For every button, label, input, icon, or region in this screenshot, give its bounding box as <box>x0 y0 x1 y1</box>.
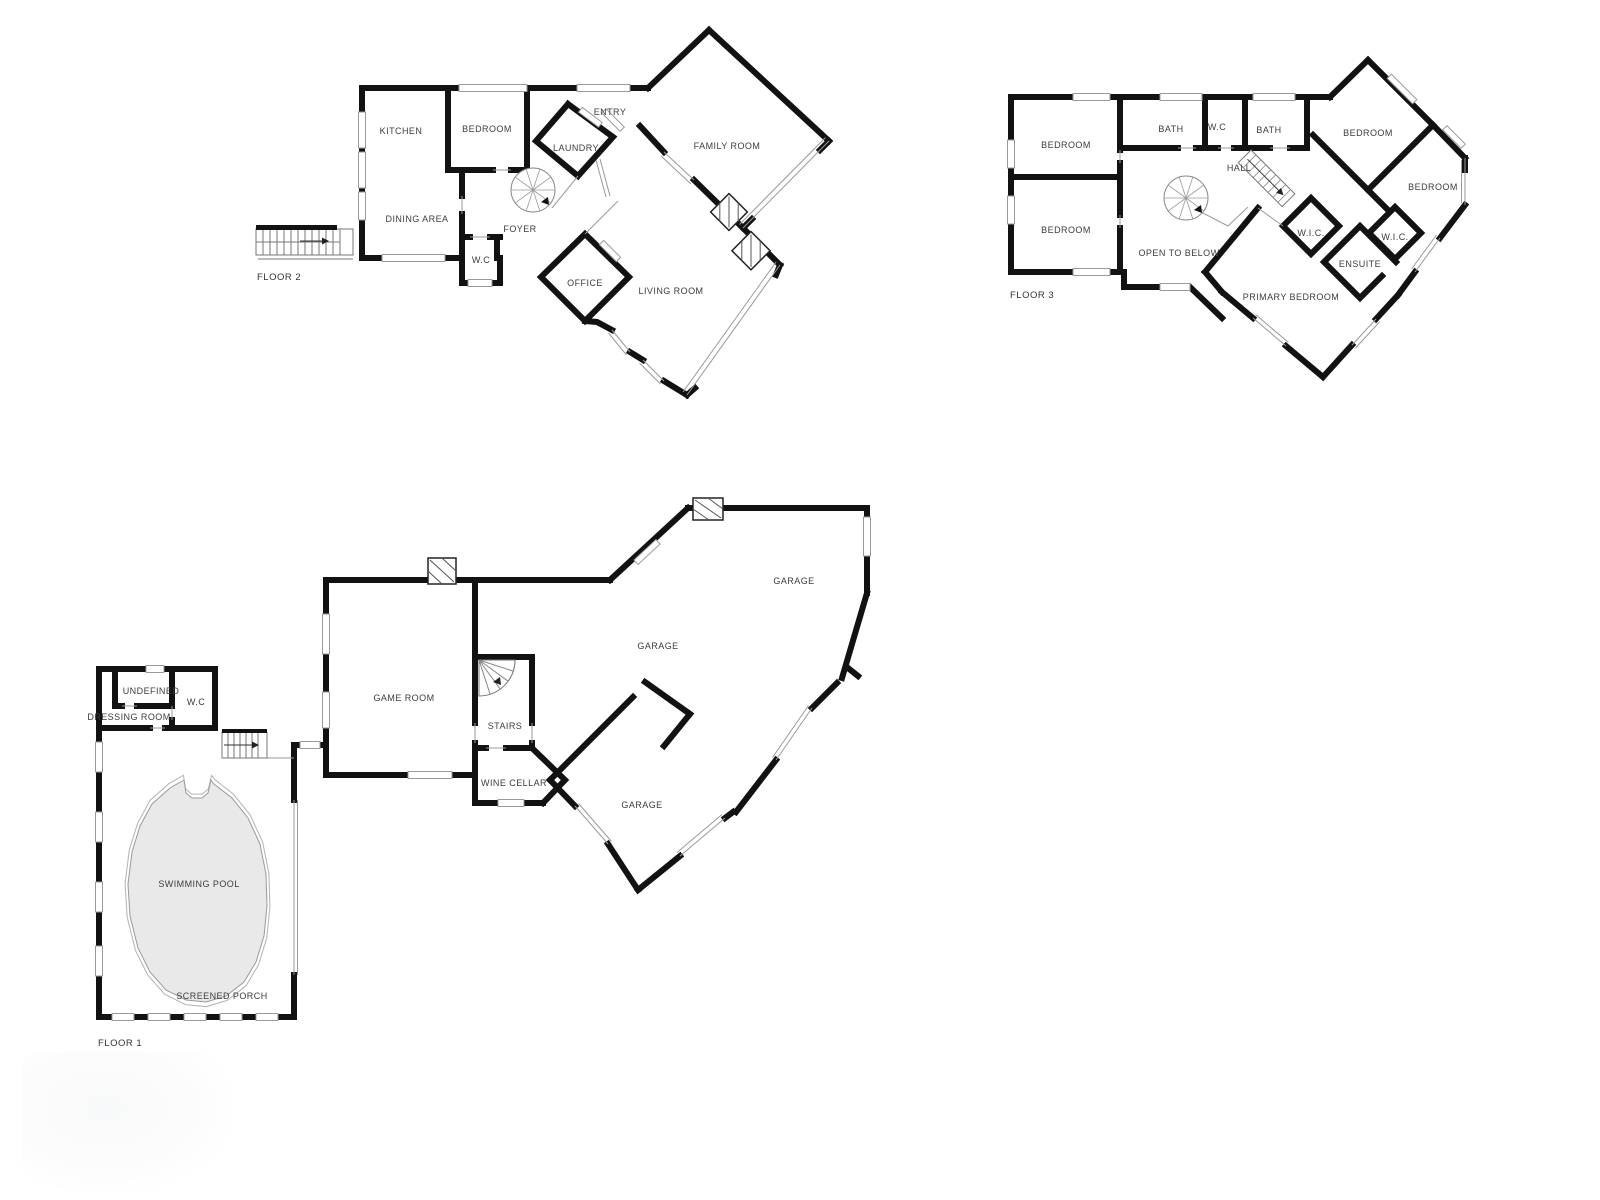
room-label-wic-right: W.I.C. <box>1381 232 1408 242</box>
room-label-open-to-below: OPEN TO BELOW <box>1138 248 1219 258</box>
room-label-bath-1: BATH <box>1158 124 1183 134</box>
room-label-kitchen: KITCHEN <box>380 126 423 136</box>
room-label-screened-porch: SCREENED PORCH <box>176 991 267 1001</box>
room-label-bath-2: BATH <box>1256 125 1281 135</box>
floor-1-caption: FLOOR 1 <box>98 1038 142 1049</box>
floor-3-caption: FLOOR 3 <box>1010 290 1054 301</box>
room-label-wic-left: W.I.C. <box>1297 228 1324 238</box>
room-label-bedroom-f3-bl: BEDROOM <box>1041 225 1091 235</box>
room-label-laundry: LAUNDRY <box>553 143 599 153</box>
room-label-bedroom-f3-tl: BEDROOM <box>1041 140 1091 150</box>
faint-watermark <box>22 1052 232 1192</box>
room-label-ensuite: ENSUITE <box>1339 259 1381 269</box>
floor-2-caption: FLOOR 2 <box>257 272 301 283</box>
room-label-game-room: GAME ROOM <box>373 693 434 703</box>
room-label-family-room: FAMILY ROOM <box>694 141 761 151</box>
room-label-wine-cellar: WINE CELLAR <box>481 778 547 788</box>
pool-shape <box>128 780 267 1002</box>
room-label-bedroom-f3-r: BEDROOM <box>1408 182 1458 192</box>
room-label-living-room: LIVING ROOM <box>639 286 704 296</box>
room-label-entry: ENTRY <box>594 107 627 117</box>
room-label-garage-bottom: GARAGE <box>621 800 662 810</box>
room-label-bedroom-f3-tr: BEDROOM <box>1343 128 1393 138</box>
room-label-garage-center: GARAGE <box>637 641 678 651</box>
room-label-dining-area: DINING AREA <box>386 214 449 224</box>
room-label-undefined: UNDEFINED <box>123 686 180 696</box>
room-label-garage-right: GARAGE <box>773 576 814 586</box>
room-label-office: OFFICE <box>567 278 603 288</box>
room-label-bedroom-f2: BEDROOM <box>462 124 512 134</box>
room-label-wc-f3: W.C <box>1208 122 1226 132</box>
room-label-wc-f1: W.C <box>187 697 205 707</box>
room-label-dressing-room: DRESSING ROOM <box>87 712 170 722</box>
room-label-stairs: STAIRS <box>488 721 523 731</box>
room-label-foyer: FOYER <box>503 224 536 234</box>
room-label-primary-bedroom: PRIMARY BEDROOM <box>1243 292 1339 302</box>
floor-plan-page: KITCHEN BEDROOM ENTRY LAUNDRY FAMILY ROO… <box>0 0 1600 1200</box>
room-label-wc-f2: W.C <box>472 255 490 265</box>
room-label-swimming-pool: SWIMMING POOL <box>158 879 239 889</box>
floor-plan-drawing <box>0 0 1600 1200</box>
room-label-hall: HALL <box>1227 163 1251 173</box>
